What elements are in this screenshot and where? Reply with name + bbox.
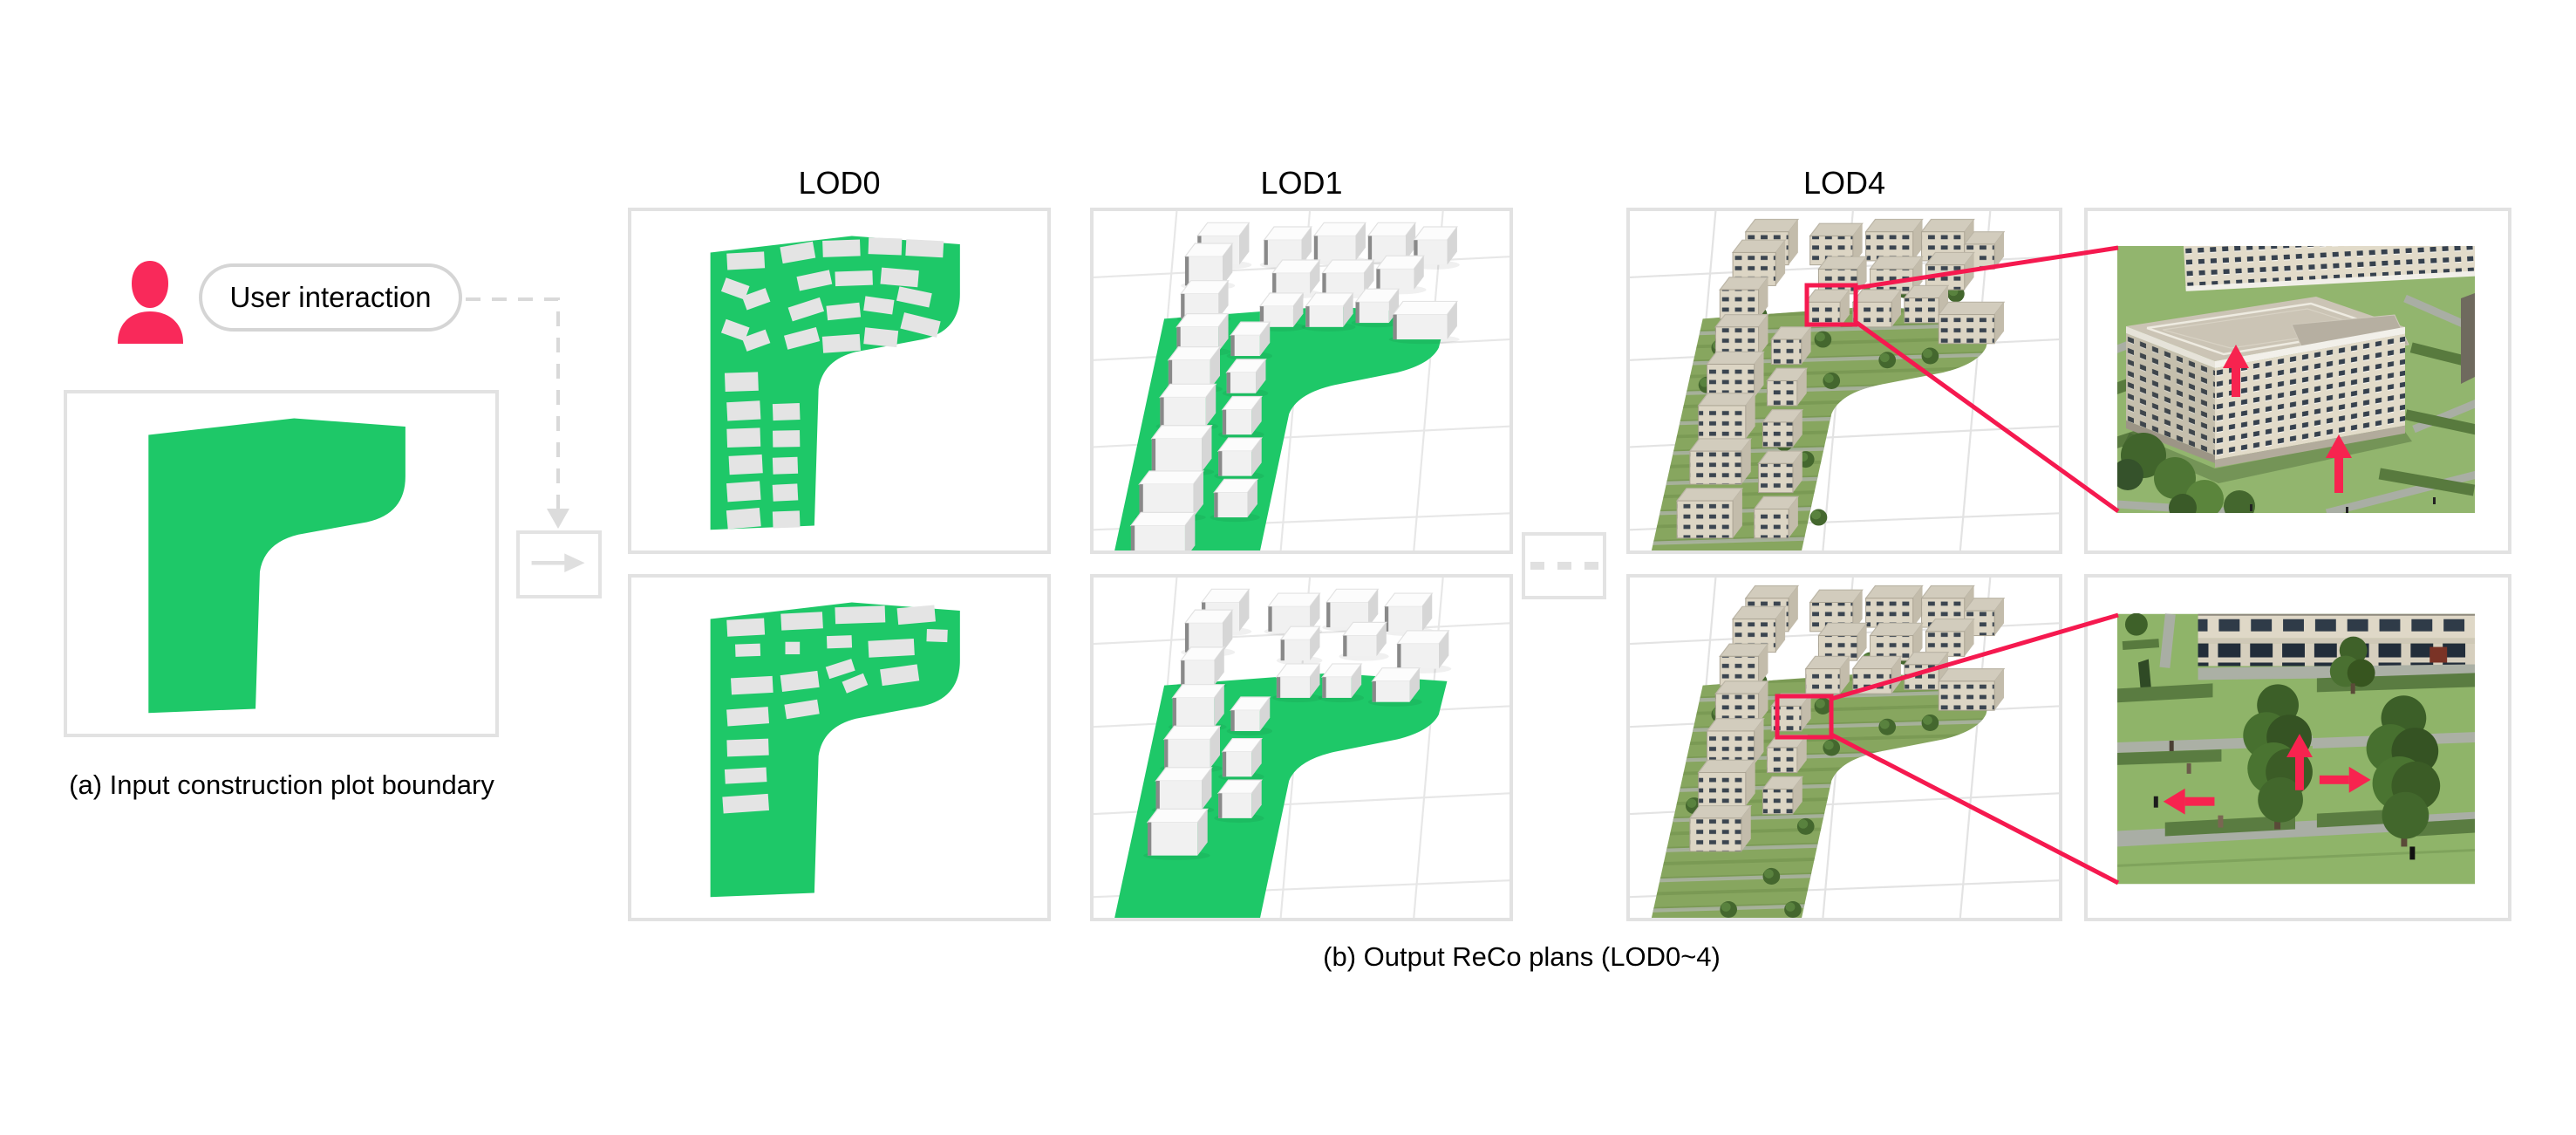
caption-a: (a) Input construction plot boundary: [37, 769, 526, 801]
panel-lod1-bottom: [1090, 574, 1513, 921]
input-plot-panel: [64, 390, 499, 737]
panel-detail-top: [2084, 208, 2511, 554]
lod0-label: LOD0: [628, 164, 1051, 202]
ellipsis-icon: [1584, 562, 1598, 570]
caption-b: (b) Output ReCo plans (LOD0~4): [1203, 941, 1840, 973]
person-icon: [117, 259, 185, 344]
panel-lod1-top: [1090, 208, 1513, 554]
arrow-right-icon: [520, 534, 598, 595]
ellipsis-icon: [1557, 562, 1571, 570]
ellipsis-box: [1522, 532, 1606, 599]
flow-arrow-box: [516, 530, 602, 598]
detail-photo-building: [2117, 246, 2475, 513]
background-building: [2198, 614, 2475, 667]
panel-lod4-top: [1626, 208, 2062, 554]
panel-lod0-bottom: [628, 574, 1051, 921]
panel-detail-bottom: [2084, 574, 2511, 921]
lod4-label: LOD4: [1626, 164, 2062, 202]
detail-photo-greenspace: [2117, 613, 2475, 885]
user-interaction-label: User interaction: [229, 281, 431, 313]
user-interaction-pill: User interaction: [199, 263, 462, 332]
panel-lod0-top: [628, 208, 1051, 554]
figure-canvas: User interaction (a) Input construction …: [0, 0, 2576, 1135]
plot-boundary-polygon: [67, 393, 495, 734]
lod1-label: LOD1: [1090, 164, 1513, 202]
ellipsis-icon: [1530, 562, 1544, 570]
panel-lod4-bottom: [1626, 574, 2062, 921]
arrow-down-icon: [547, 509, 569, 529]
